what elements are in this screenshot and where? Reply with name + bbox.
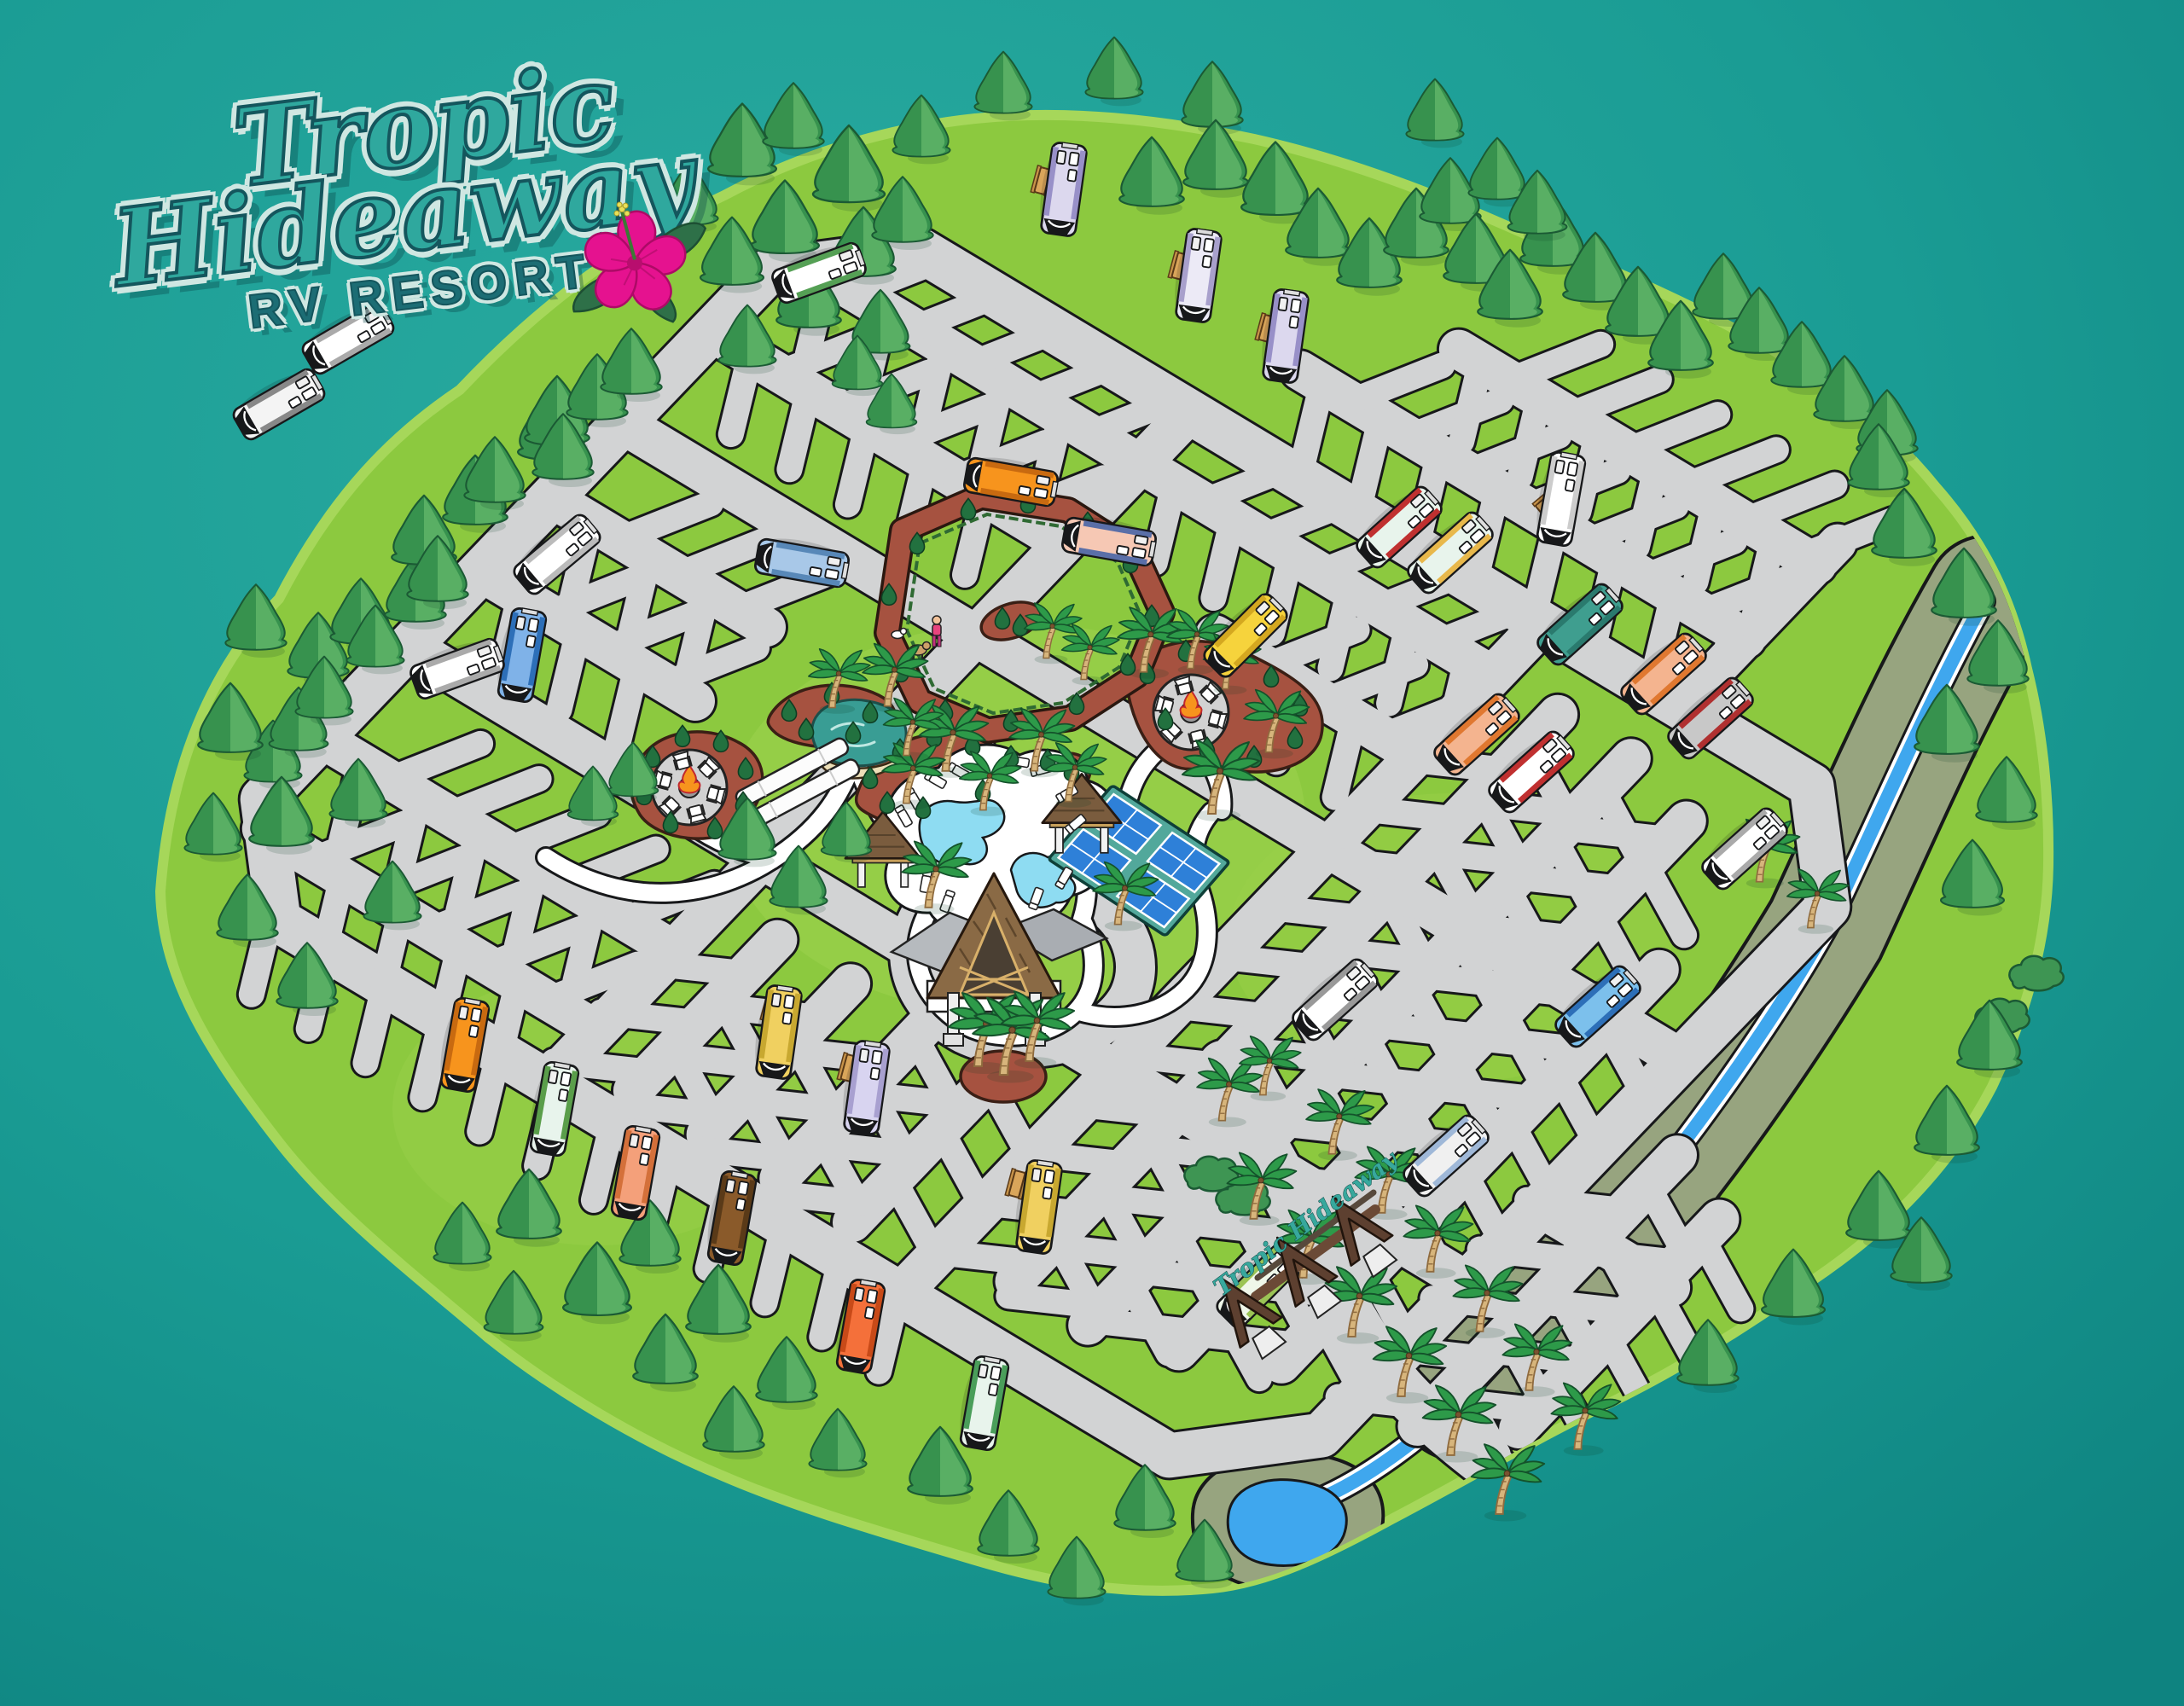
- resort-map-illustration: Tropic Hideaway: [0, 0, 2184, 1706]
- resort-map-page: Tropic Hideaway Tropic Hideaway RV RESOR…: [0, 0, 2184, 1706]
